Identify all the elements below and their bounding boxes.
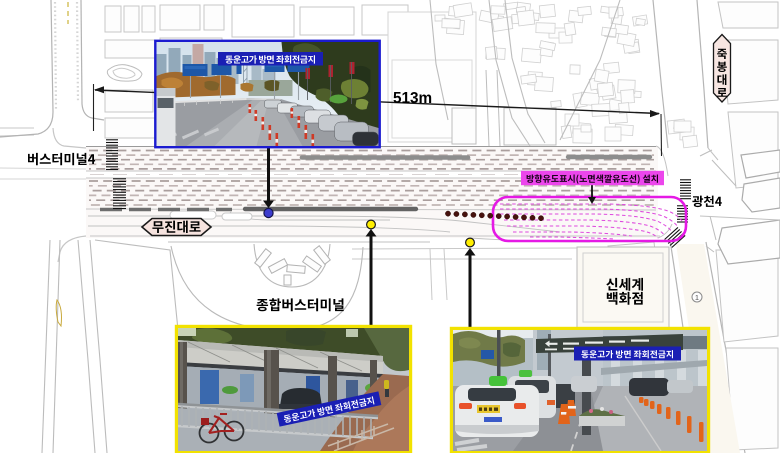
svg-text:1: 1 (695, 293, 699, 302)
svg-text:513m: 513m (393, 90, 432, 107)
